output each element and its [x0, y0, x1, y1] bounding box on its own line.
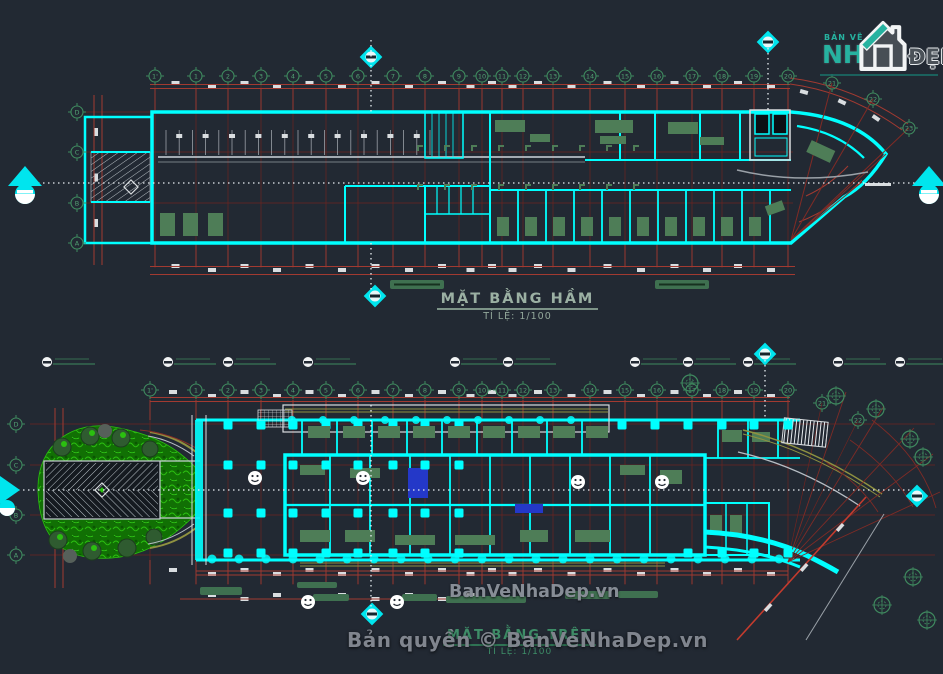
fan-radials: [791, 83, 909, 240]
furniture-rect: [749, 217, 761, 236]
stall-glyph: [498, 184, 500, 190]
grid-bubble-label: 1: [194, 386, 198, 394]
stall-glyph: [525, 184, 527, 190]
column-marker: [750, 421, 759, 430]
detail-callout-slot: [896, 361, 904, 364]
dim-tick: [94, 219, 98, 227]
bush-scallop: [567, 416, 575, 424]
bush-scallop: [343, 555, 352, 564]
grid-bubble-label: 15: [621, 72, 629, 80]
column-marker: [718, 421, 727, 430]
bush-scallop: [532, 555, 541, 564]
furniture-rect: [497, 217, 509, 236]
column-marker: [389, 461, 398, 470]
grid-bubble-label: 16: [653, 386, 661, 394]
bush-scallop: [640, 555, 649, 564]
grid-bubble-label: 2: [226, 386, 230, 394]
face-callout: [301, 595, 315, 609]
column-marker: [354, 549, 363, 558]
bush-scallop: [350, 416, 358, 424]
grid-bubble-label: 6: [356, 72, 360, 80]
dim-tick: [568, 268, 576, 272]
stall-number-tick: [229, 134, 235, 138]
face-callout-eye: [579, 479, 581, 481]
dim-tick: [637, 268, 645, 272]
bush-scallop: [262, 555, 271, 564]
grid-bubble-label: 18: [718, 386, 726, 394]
diamond-section-marker-slot: [763, 41, 773, 44]
grid-bubble-label: 18: [718, 72, 726, 80]
grid-bubble-label: 22: [854, 416, 862, 424]
grid-bubble-label: 4: [291, 72, 295, 80]
elevator-block: [750, 110, 790, 160]
stall-glyph: [633, 184, 635, 190]
bush-scallop: [412, 416, 420, 424]
detail-callout-slot: [164, 361, 172, 364]
diamond-section-marker-slot: [760, 353, 770, 356]
dim-tick: [169, 390, 177, 394]
footer-copyright: Bản quyền © BanVeNhaDep.vn: [347, 628, 708, 652]
bush-scallop: [748, 555, 757, 564]
stall-glyph: [471, 184, 473, 190]
stall-glyph: [606, 145, 608, 151]
dim-tick: [208, 268, 216, 272]
dim-tick: [169, 568, 177, 572]
dim-tick: [241, 390, 249, 394]
grid-bubble-label: B: [14, 511, 18, 519]
column-marker: [257, 509, 266, 518]
face-callout-eye: [251, 475, 253, 477]
grid-bubble-label: 1': [147, 386, 153, 394]
bed-symbol: [343, 426, 365, 438]
column-marker: [684, 421, 693, 430]
face-callout-eye: [663, 479, 665, 481]
column-marker: [651, 421, 660, 430]
column-marker: [322, 461, 331, 470]
grid-bubble-label: 2: [226, 72, 230, 80]
center-watermark: BanVeNhaDep.vn: [449, 582, 619, 602]
bed-symbol: [553, 426, 575, 438]
furniture-rect: [525, 217, 537, 236]
grid-bubble-label: A: [75, 239, 80, 247]
column-marker: [455, 461, 464, 470]
bed-symbol: [483, 426, 505, 438]
stall-number-tick: [387, 134, 393, 138]
dim-tick: [734, 390, 742, 394]
stall-number-tick: [282, 134, 288, 138]
fan-dim-ticks: [800, 89, 881, 122]
stall-number-tick: [308, 134, 314, 138]
grid-bubble-label: D: [13, 420, 18, 428]
bush-scallop: [288, 416, 296, 424]
bed-symbol: [378, 426, 400, 438]
dim-tick: [703, 268, 711, 272]
stall-glyph: [552, 145, 554, 151]
grid-bubble-label: 19: [750, 72, 758, 80]
cad-screenshot-stage: 1'1234567891011121314151617181920212223D…: [0, 0, 943, 674]
grid-bubble-label: 10: [478, 386, 486, 394]
bed-symbol: [586, 426, 608, 438]
column-marker: [257, 461, 266, 470]
grid-bubble-label: 7: [391, 72, 395, 80]
bush-scallop: [613, 555, 622, 564]
grid-bubble-label: 16: [653, 72, 661, 80]
detail-callout-slot: [224, 361, 232, 364]
basement-ramp: [91, 152, 150, 202]
bush-scallop: [694, 555, 703, 564]
stall-glyph: [471, 145, 473, 151]
dim-tick: [488, 390, 496, 394]
bush-scallop: [478, 555, 487, 564]
detail-callout-slot: [834, 361, 842, 364]
bush-scallop: [667, 555, 676, 564]
face-callout-eye: [398, 599, 400, 601]
column-marker: [684, 549, 693, 558]
grid-bubble-label: 9: [457, 72, 461, 80]
stall-glyph: [552, 184, 554, 190]
furniture-rect: [609, 217, 621, 236]
stall-number-tick: [335, 134, 341, 138]
column-marker: [224, 421, 233, 430]
grid-bubble-label: 20: [784, 72, 792, 80]
grid-bubble-label: 20: [784, 386, 792, 394]
stall-glyph: [606, 184, 608, 190]
detail-callout-slot: [451, 361, 459, 364]
stall-glyph: [417, 145, 419, 151]
detail-callout-slot: [43, 361, 51, 364]
bush-scallop: [319, 416, 327, 424]
section-marker-left-ground: [0, 476, 20, 516]
face-callout: [655, 475, 669, 489]
dim-tick: [438, 390, 446, 394]
grid-bubble-label: D: [74, 108, 79, 116]
face-callout-eye: [309, 599, 311, 601]
grid-bubble-label: 8: [423, 386, 427, 394]
dim-tick: [306, 390, 314, 394]
dim-tick: [604, 390, 612, 394]
column-marker: [224, 549, 233, 558]
face-callout-eye: [364, 475, 366, 477]
grid-bubble-label: 3: [259, 72, 263, 80]
face-callout: [248, 471, 262, 485]
bush-scallop: [443, 416, 451, 424]
right-wing-arcs: [738, 418, 882, 506]
diamond-section-marker-slot: [370, 295, 380, 298]
dim-tick: [534, 390, 542, 394]
section-diagonals: [737, 497, 884, 640]
column-marker: [389, 549, 398, 558]
column-marker: [389, 509, 398, 518]
blue-detail-1: [408, 468, 428, 498]
bush-scallop: [505, 555, 514, 564]
grid-bubble-label: 13: [549, 72, 557, 80]
grid-bubble-label: 14: [586, 72, 594, 80]
grid-bubble-label: 21: [818, 399, 826, 407]
bush-scallop: [289, 555, 298, 564]
stall-glyph: [633, 145, 635, 151]
cad-canvas: 1'1234567891011121314151617181920212223D…: [0, 0, 943, 674]
furniture-rect: [581, 217, 593, 236]
dim-tick: [405, 268, 413, 272]
bed-symbol: [413, 426, 435, 438]
bed-symbol: [448, 426, 470, 438]
logo-underline: [820, 74, 938, 76]
bush-scallop: [381, 416, 389, 424]
face-callout-eye: [304, 599, 306, 601]
column-marker: [224, 461, 233, 470]
bush-scallop: [397, 555, 406, 564]
stall-glyph: [444, 184, 446, 190]
detail-callout-slot: [504, 361, 512, 364]
bush-scallop: [235, 555, 244, 564]
bush-scallop: [586, 555, 595, 564]
grid-bubble-label: 21: [828, 79, 836, 87]
grid-bubble-label: 22: [869, 95, 877, 103]
stall-glyph: [498, 145, 500, 151]
dim-tick: [767, 268, 775, 272]
column-marker: [421, 509, 430, 518]
face-callout-eye: [256, 475, 258, 477]
grid-bubble-label: 11: [498, 386, 506, 394]
logo-suffix-text: ĐẸP: [908, 45, 943, 69]
section-marker-right-basement: [912, 166, 943, 204]
stall-glyph: [579, 184, 581, 190]
bush-scallop: [451, 555, 460, 564]
dim-tick: [467, 268, 475, 272]
grid-bubble-label: 12: [519, 386, 527, 394]
furniture-rect: [553, 217, 565, 236]
bush-scallop: [559, 555, 568, 564]
grid-bubble-label: 11: [498, 72, 506, 80]
grid-bubble-label: 1': [152, 72, 158, 80]
detail-callout-slot: [304, 361, 312, 364]
face-callout-eye: [574, 479, 576, 481]
grid-bubble-label: 12: [519, 72, 527, 80]
grid-bubble-label: 17: [688, 72, 696, 80]
basement-plan-title: MẶT BẰNG HẦM: [437, 291, 599, 310]
bed-symbol: [518, 426, 540, 438]
grid-bubble-label: 1: [194, 72, 198, 80]
grid-bubble-label: C: [14, 461, 19, 469]
dim-tick: [509, 268, 517, 272]
grid-bubble-label: 15: [621, 386, 629, 394]
basement-plan-scale: TỈ LỆ: 1/100: [430, 311, 605, 322]
grid-bubble-label: 13: [549, 386, 557, 394]
stall-number-tick: [255, 134, 261, 138]
blue-detail-2: [515, 504, 543, 513]
grid-bubble-label: 10: [478, 72, 486, 80]
column-marker: [354, 509, 363, 518]
grid-bubble-label: 7: [391, 386, 395, 394]
furniture-rect: [665, 217, 677, 236]
bush-scallop: [536, 416, 544, 424]
dim-tick: [372, 390, 380, 394]
column-marker: [257, 421, 266, 430]
dim-tick: [338, 268, 346, 272]
face-callout: [390, 595, 404, 609]
grid-bubble-label: 4: [291, 386, 295, 394]
grid-bubble-label: 14: [586, 386, 594, 394]
column-marker: [421, 461, 430, 470]
column-marker: [354, 461, 363, 470]
grid-bubble-label: 9: [457, 386, 461, 394]
face-callout: [356, 471, 370, 485]
column-marker: [618, 421, 627, 430]
stall-glyph: [417, 184, 419, 190]
basement-dim-lines: [94, 78, 908, 275]
stall-number-tick: [203, 134, 209, 138]
column-marker: [322, 509, 331, 518]
bush-scallop: [424, 555, 433, 564]
bush-scallop: [721, 555, 730, 564]
grid-bubble-label: B: [75, 199, 79, 207]
column-marker: [289, 509, 298, 518]
detail-callout-slot: [744, 361, 752, 364]
dim-tick: [273, 268, 281, 272]
house-icon: [856, 18, 910, 74]
stall-number-tick: [361, 134, 367, 138]
grid-bubble-label: 6: [356, 386, 360, 394]
stall-glyph: [444, 145, 446, 151]
fan-drive-lane: [737, 170, 868, 178]
stall-glyph: [525, 145, 527, 151]
bush-scallop: [775, 555, 784, 564]
grid-bubble-label: 19: [750, 386, 758, 394]
grid-bubble-label: 3: [259, 386, 263, 394]
dim-tick: [273, 593, 281, 597]
face-callout-eye: [658, 479, 660, 481]
basement-title-block: MẶT BẰNG HẦM TỈ LỆ: 1/100: [430, 288, 605, 322]
stall-number-tick: [176, 134, 182, 138]
grid-bubble-label: 5: [324, 72, 328, 80]
grid-bubble-label: 5: [324, 386, 328, 394]
bush-scallop: [505, 416, 513, 424]
furniture-rect: [693, 217, 705, 236]
face-callout-eye: [393, 599, 395, 601]
grid-bubble-label: 23: [905, 124, 913, 132]
grid-bubble-label: C: [75, 148, 80, 156]
detail-callout-slot: [684, 361, 692, 364]
column-marker: [784, 421, 793, 430]
furniture-rect: [721, 217, 733, 236]
column-marker: [224, 509, 233, 518]
dim-tick: [94, 128, 98, 136]
diamond-section-marker-slot: [367, 613, 377, 616]
bush-scallop: [474, 416, 482, 424]
face-callout-eye: [359, 475, 361, 477]
section-marker-left-basement: [8, 166, 42, 204]
stall-glyph: [579, 145, 581, 151]
diamond-section-marker-slot: [912, 495, 922, 498]
column-marker: [784, 549, 793, 558]
face-callout: [571, 475, 585, 489]
column-marker: [289, 461, 298, 470]
grid-bubble-label: A: [14, 551, 19, 559]
dim-tick: [671, 390, 679, 394]
column-marker: [455, 509, 464, 518]
bed-symbol: [308, 426, 330, 438]
furniture-rect: [637, 217, 649, 236]
site-logo: BẢN VẼ NH ĐẸP: [820, 12, 940, 78]
stall-number-tick: [414, 134, 420, 138]
detail-callout-slot: [631, 361, 639, 364]
grid-bubble-label: 8: [423, 72, 427, 80]
bush-scallop: [208, 555, 217, 564]
bush-scallop: [316, 555, 325, 564]
